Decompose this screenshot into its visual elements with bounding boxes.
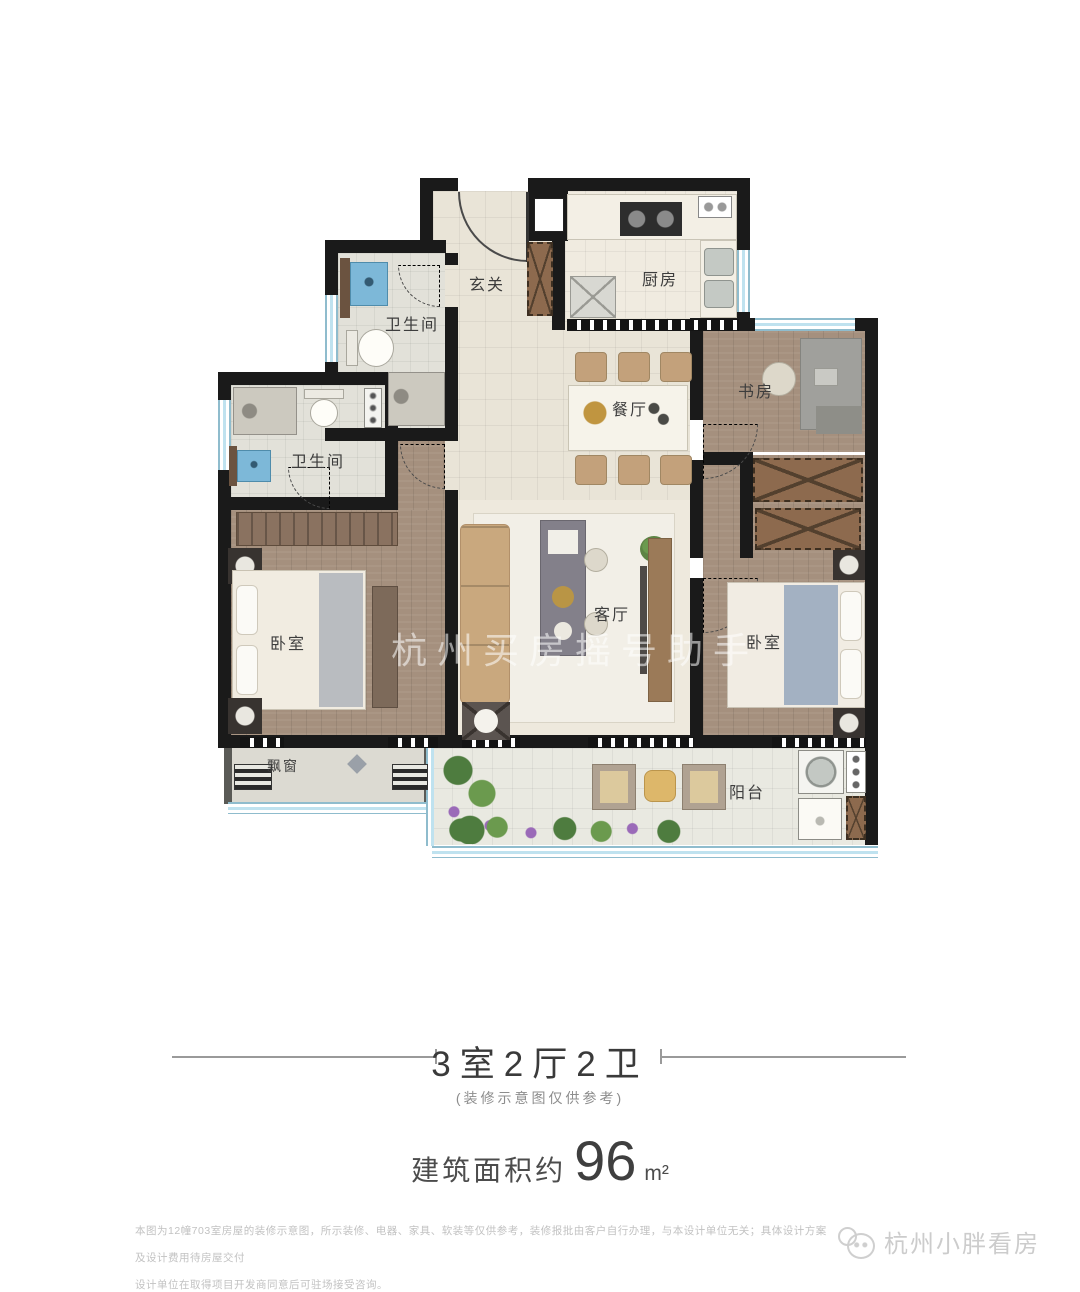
room-label-bath1: 卫生间 (385, 311, 439, 335)
bed-right-blanket (784, 585, 838, 705)
balcony-sliding-door (588, 737, 694, 748)
dining-chair (575, 455, 607, 485)
balcony-chair-seat (690, 771, 718, 803)
entry-niche (534, 198, 564, 232)
bay-window-glass (228, 802, 430, 814)
balcony-glass-side (426, 748, 434, 846)
balcony-sliding-door (772, 737, 866, 748)
layout-subtitle: (装修示意图仅供参考) (0, 1088, 1080, 1108)
study-laptop (814, 368, 838, 386)
bathroom2-toilet-tank (304, 389, 344, 399)
kitchen-sink (704, 280, 734, 308)
disclaimer-line1: 本图为12幢703室房屋的装修示意图，所示装修、电器、家具、软装等仅供参考，装修… (135, 1218, 835, 1272)
bay-window-sill (392, 764, 428, 790)
bathroom1-vanity (350, 262, 388, 306)
balcony-sink (798, 798, 842, 840)
room-label-dining: 餐厅 (612, 396, 648, 420)
room-label-study: 书房 (738, 378, 774, 402)
wall (218, 385, 231, 400)
window (755, 318, 855, 331)
wall (865, 331, 878, 845)
footer-watermark-text: 杭州小胖看房 (884, 1224, 1040, 1259)
wall (445, 307, 458, 440)
kitchen-sink (704, 248, 734, 276)
room-label-bath2: 卫生间 (291, 448, 345, 472)
kitchen-hob-box (698, 196, 732, 218)
dining-chair (575, 352, 607, 382)
room-label-kitchen: 厨房 (642, 266, 678, 290)
side-table-lamp (474, 709, 498, 733)
coffee-table-tray (548, 530, 578, 554)
bathroom1-shower (388, 372, 445, 426)
stool (584, 548, 608, 572)
coffee-table-plate (552, 586, 574, 608)
balcony-table (644, 770, 676, 802)
balcony-chair (592, 764, 636, 810)
disclaimer-line2: 设计单位在取得项目开发商同意后可驻场接受咨询。 (135, 1272, 835, 1292)
room-label-bay-window: 飘窗 (267, 756, 299, 776)
wall (445, 253, 458, 265)
dining-chair (618, 455, 650, 485)
bed-right-pillow (840, 591, 862, 641)
wardrobe-right (753, 458, 863, 502)
sill (388, 737, 438, 748)
area-unit: m² (644, 1162, 669, 1186)
bathroom1-toilet-tank (346, 330, 358, 366)
entry-wardrobe (527, 242, 553, 316)
balcony-chair (682, 764, 726, 810)
mascot-icon (838, 1225, 876, 1259)
sofa (460, 524, 510, 704)
bathroom1-washer-column (364, 388, 382, 428)
balcony-washer (798, 750, 844, 794)
wardrobe-right (755, 508, 861, 550)
wall (737, 191, 750, 250)
nightstand (833, 708, 865, 738)
bathroom2-counter (229, 446, 237, 486)
area-row: 建筑面积约 96 m² (0, 1128, 1080, 1193)
bay-window-side-wall (224, 748, 232, 804)
wall (445, 490, 458, 745)
layout-title: 3室2厅2卫 (0, 1036, 1080, 1087)
study-rug (816, 406, 862, 434)
balcony-cabinet (846, 796, 866, 840)
room-label-bedroom-left: 卧室 (270, 630, 306, 654)
footer-watermark: 杭州小胖看房 (838, 1224, 1040, 1259)
window (737, 250, 750, 312)
disclaimer: 本图为12幢703室房屋的装修示意图，所示装修、电器、家具、软装等仅供参考，装修… (135, 1218, 835, 1292)
sill (240, 737, 284, 748)
bed-right-pillow (840, 649, 862, 699)
dining-chair (660, 352, 692, 382)
bed-left-pillow (236, 645, 258, 695)
bathroom2-shower (233, 387, 297, 435)
balcony-chair-seat (600, 771, 628, 803)
kitchen-stove (620, 202, 682, 236)
bathroom2-toilet (310, 399, 338, 427)
room-label-balcony: 阳台 (729, 779, 765, 803)
balcony-plants (440, 816, 700, 844)
balcony-knob-panel (846, 751, 866, 793)
wall (218, 372, 390, 385)
kitchen-sliding-door (567, 319, 739, 331)
bed-left-blanket (319, 573, 363, 707)
wall (740, 452, 753, 558)
bathroom1-counter (340, 258, 350, 318)
center-watermark: 杭州买房摇号助手 (391, 622, 759, 674)
dining-chair (660, 455, 692, 485)
wall (855, 318, 878, 331)
nightstand (228, 698, 262, 734)
room-label-entrance: 玄关 (469, 271, 505, 295)
wall (325, 253, 338, 295)
area-prefix: 建筑面积约 (411, 1149, 566, 1189)
kitchen-fridge (570, 276, 616, 318)
window (325, 295, 338, 362)
wall (528, 178, 750, 191)
bathroom2-vanity (237, 450, 271, 482)
wall (325, 240, 446, 253)
floorplan-page: 玄关 厨房 卫生间 卫生间 餐厅 书房 客厅 卧室 卧室 飘窗 阳台 杭州买房摇… (0, 0, 1080, 1292)
area-value: 96 (574, 1128, 636, 1193)
wardrobe-left (236, 512, 398, 546)
tv-cabinet (648, 538, 672, 702)
mascot-icon-face-circle (847, 1233, 875, 1259)
bed-left-pillow (236, 585, 258, 635)
dining-chair (618, 352, 650, 382)
nightstand (833, 550, 865, 580)
balcony-glass (432, 846, 878, 858)
